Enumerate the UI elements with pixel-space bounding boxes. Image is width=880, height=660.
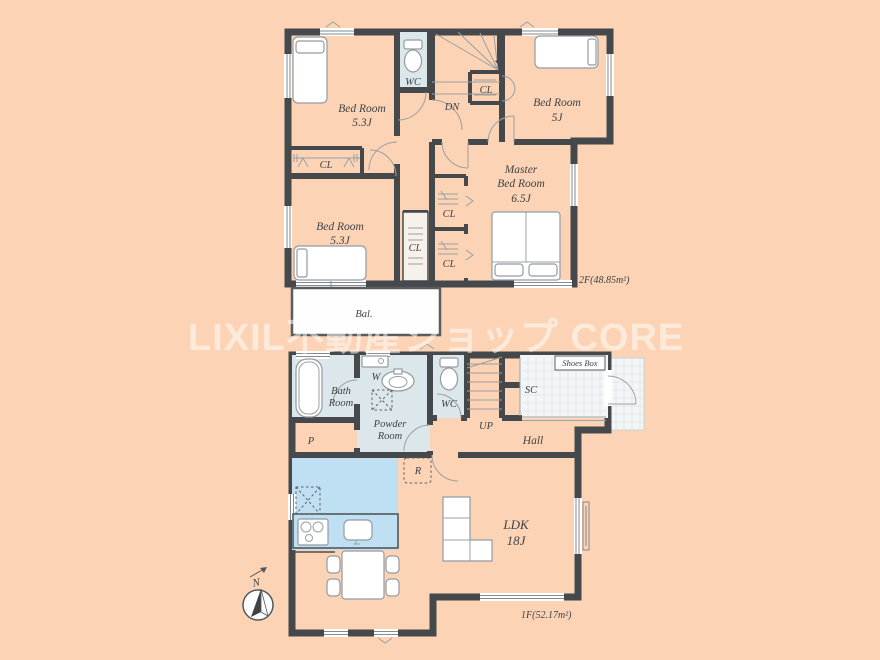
ldk-size: 18J (507, 533, 527, 548)
bedroom3-size: 5.3J (330, 235, 350, 247)
entrance-porch (608, 358, 644, 430)
closet-m2-label: CL (443, 259, 456, 270)
closet-strip-label: CL (409, 243, 422, 254)
bedroom1-size: 5.3J (352, 117, 372, 129)
bed-pillow-3 (297, 249, 307, 277)
bedroom1-label: Bed Room (338, 103, 386, 115)
bedroom3-label: Bed Room (316, 221, 364, 233)
watermark-text: LIXIL不動産ショップ CORE (188, 317, 684, 359)
bedroom2-size: 5J (552, 112, 564, 124)
1f-stairs (467, 357, 502, 409)
refrigerator-label: R (414, 466, 422, 477)
wc-1f-label: WC (441, 399, 458, 410)
floor-2f: Bal. Bed Room 5.3J WC DN CL Bed Room 5J … (284, 22, 630, 335)
wc-2f-label: WC (405, 77, 422, 88)
bed-pillow-1 (296, 41, 324, 53)
dining-table-icon (342, 551, 384, 599)
bath-label-2: Room (328, 398, 354, 409)
ldk-label: LDK (502, 517, 530, 532)
sofa-icon (443, 497, 492, 561)
sc-wall-stub (504, 382, 520, 388)
pantry-label: P (307, 436, 315, 447)
washer-label: W (372, 372, 382, 383)
hall-label: Hall (522, 435, 543, 447)
toilet-2f-icon (404, 40, 422, 72)
bath-label-1: Bath (331, 386, 351, 397)
powder-label-1: Powder (373, 419, 408, 430)
floorplan-canvas: Bal. Bed Room 5.3J WC DN CL Bed Room 5J … (0, 0, 880, 660)
bed-pillow-2 (588, 39, 596, 65)
area-1f-label: 1F(52.17m²) (521, 610, 572, 621)
master-size: 6.5J (511, 193, 531, 205)
bedroom2-label: Bed Room (533, 97, 581, 109)
closet-stairs-label: CL (480, 85, 493, 96)
closet-left-label: CL (320, 160, 333, 171)
shoe-closet-label: SC (525, 385, 538, 396)
bathtub-icon (296, 359, 322, 417)
closet-m1-label: CL (443, 209, 456, 220)
floorplan-page: Bal. Bed Room 5.3J WC DN CL Bed Room 5J … (0, 0, 880, 660)
master-label-2: Bed Room (497, 178, 545, 190)
sink-icon (344, 520, 372, 540)
compass-arrowhead (260, 567, 267, 573)
2f-roof-ticks (326, 22, 534, 27)
bed-double-master (492, 212, 560, 280)
compass-north-label: N (251, 576, 262, 589)
stairs-up-label: UP (479, 421, 494, 432)
floor-1f: Shoes Box Bath Room W Powder Room WC UP … (288, 344, 644, 643)
shoes-box-label: Shoes Box (562, 358, 597, 368)
compass: N (243, 567, 273, 620)
area-2f-label: 2F(48.85m²) (579, 275, 630, 286)
master-label-1: Master (504, 164, 538, 176)
powder-label-2: Room (377, 431, 403, 442)
stairs-dn-label: DN (444, 102, 461, 113)
toilet-1f-icon (440, 358, 458, 390)
dining-set (327, 551, 399, 599)
